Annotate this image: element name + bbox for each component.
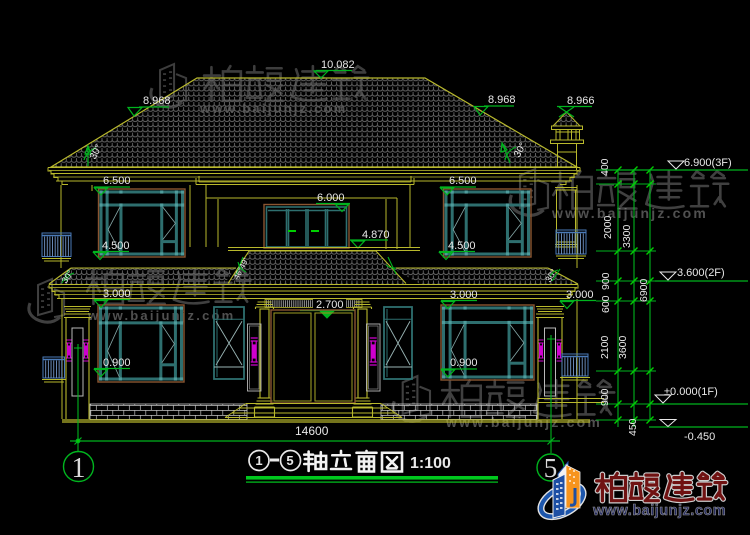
svg-text:www.baijunjz.com: www.baijunjz.com: [592, 503, 726, 519]
svg-text:14600: 14600: [295, 424, 329, 438]
svg-text:3600: 3600: [617, 335, 629, 359]
svg-text:6.500: 6.500: [103, 175, 131, 187]
svg-text:3.000: 3.000: [103, 288, 131, 300]
svg-text:900: 900: [599, 388, 611, 406]
svg-text:±0.000(1F): ±0.000(1F): [664, 386, 718, 398]
svg-text:6.900(3F): 6.900(3F): [684, 157, 732, 169]
svg-text:4.500: 4.500: [448, 240, 476, 252]
svg-text:900: 900: [600, 272, 612, 290]
svg-text:3.600(2F): 3.600(2F): [677, 267, 725, 279]
svg-text:1: 1: [72, 453, 86, 484]
svg-text:3.000: 3.000: [566, 289, 594, 301]
svg-text:3.000: 3.000: [450, 289, 478, 301]
svg-text:6900: 6900: [638, 278, 650, 302]
svg-text:2100: 2100: [599, 335, 611, 359]
svg-text:2000: 2000: [602, 215, 614, 239]
svg-text:0.900: 0.900: [450, 357, 478, 369]
svg-text:0.900: 0.900: [103, 357, 131, 369]
svg-text:6.000: 6.000: [317, 192, 345, 204]
svg-text:8.968: 8.968: [488, 94, 516, 106]
svg-text:www.baijunjz.com: www.baijunjz.com: [551, 205, 708, 221]
svg-text:4.870: 4.870: [362, 229, 390, 241]
svg-text:6.500: 6.500: [449, 175, 477, 187]
svg-text:3300: 3300: [621, 224, 633, 248]
svg-text:8.966: 8.966: [567, 95, 595, 107]
svg-text:450: 450: [627, 418, 639, 436]
svg-text:400: 400: [599, 158, 611, 176]
svg-text:8.968: 8.968: [143, 95, 171, 107]
svg-text:1: 1: [255, 453, 262, 468]
svg-text:600: 600: [600, 295, 612, 313]
svg-text:5: 5: [286, 453, 293, 468]
svg-text:4.500: 4.500: [102, 240, 130, 252]
svg-text:10.082: 10.082: [321, 59, 355, 71]
svg-text:2.700: 2.700: [316, 299, 344, 311]
svg-text:1:100: 1:100: [410, 455, 451, 472]
svg-text:-0.450: -0.450: [684, 431, 715, 443]
